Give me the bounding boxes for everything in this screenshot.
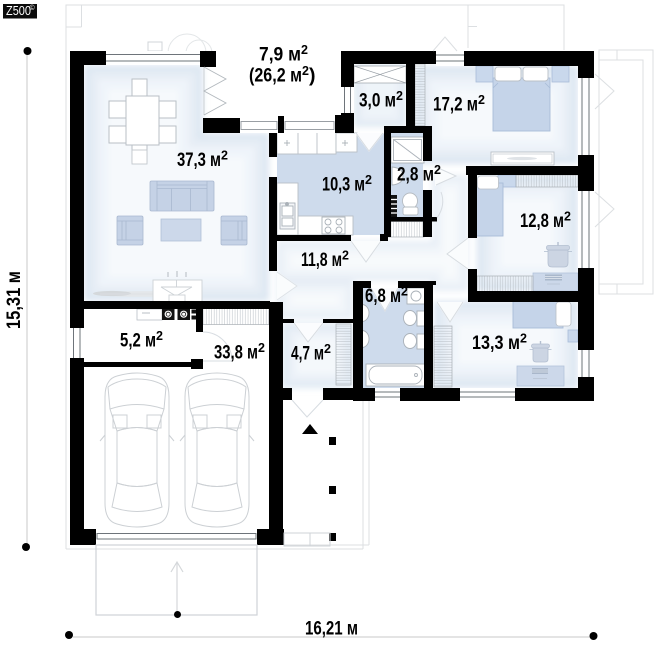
svg-text:11,8 м2: 11,8 м2 (301, 249, 349, 272)
svg-text:Z500: Z500 (6, 3, 31, 18)
svg-text:17,2 м2: 17,2 м2 (433, 93, 485, 116)
svg-text:13,3 м2: 13,3 м2 (472, 332, 527, 355)
svg-text:33,8 м2: 33,8 м2 (214, 341, 265, 364)
svg-text:16,21 м: 16,21 м (305, 618, 358, 640)
svg-text:7,9 м2: 7,9 м2 (259, 43, 308, 66)
svg-text:15,31 м: 15,31 м (3, 271, 25, 329)
svg-text:12,8 м2: 12,8 м2 (520, 210, 571, 233)
svg-text:10,3 м2: 10,3 м2 (322, 173, 372, 196)
svg-text:©: © (30, 4, 36, 12)
svg-text:37,3 м2: 37,3 м2 (177, 149, 228, 172)
